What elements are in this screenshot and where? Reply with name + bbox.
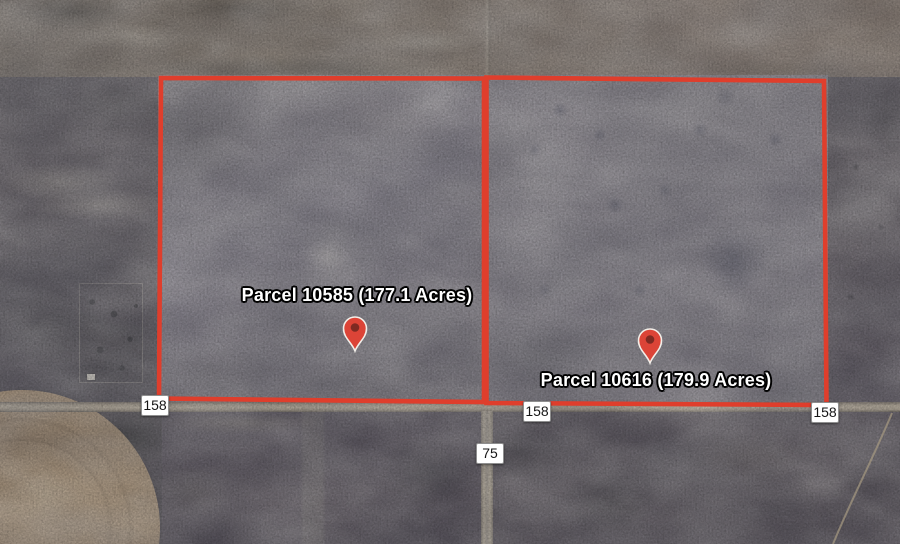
parcel-10616-boundary[interactable] xyxy=(487,78,827,406)
parcel-10616-label: Parcel 10616 (179.9 Acres) xyxy=(541,370,772,391)
parcel-10585-label: Parcel 10585 (177.1 Acres) xyxy=(242,285,473,306)
pin-body xyxy=(344,317,367,351)
route-badge-158-left: 158 xyxy=(141,395,169,416)
map-overlay xyxy=(0,0,900,544)
route-badge-75: 75 xyxy=(476,443,504,464)
red-map-pin-icon[interactable] xyxy=(639,329,662,363)
dirt-trail xyxy=(833,413,892,544)
red-map-pin-icon[interactable] xyxy=(344,317,367,351)
route-badge-158-right: 158 xyxy=(811,402,839,423)
satellite-map-canvas[interactable]: 158 158 158 75 Parcel 10585 (177.1 Acres… xyxy=(0,0,900,544)
pin-center-dot xyxy=(646,335,655,344)
pin-body xyxy=(639,329,662,363)
pin-center-dot xyxy=(351,323,360,332)
parcel-10585-boundary[interactable] xyxy=(159,78,484,402)
route-badge-158-center: 158 xyxy=(523,401,551,422)
